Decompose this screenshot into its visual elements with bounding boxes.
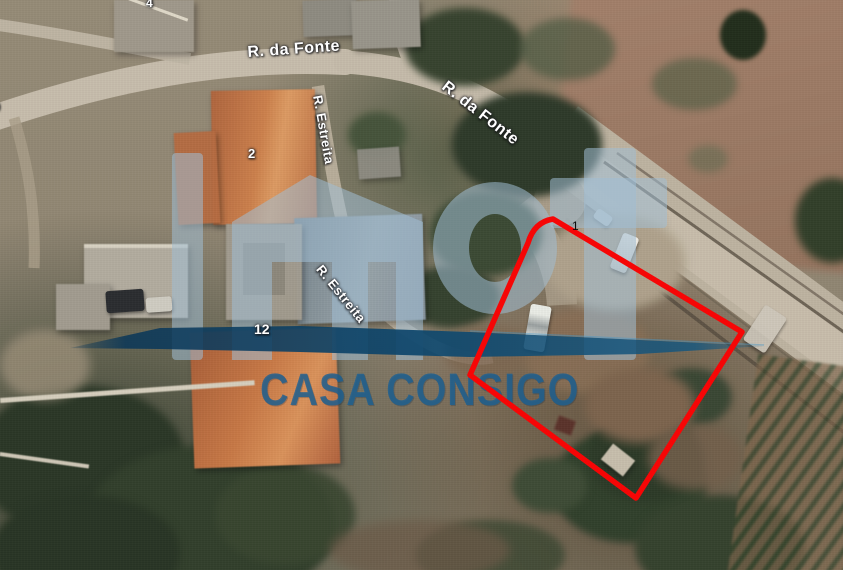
house-number-4: 4 [146, 0, 153, 10]
house-number-1: 1 [572, 219, 579, 233]
map-canvas[interactable]: imot CASA CONSIGO R. da Fonte R. da Font… [0, 0, 843, 570]
parcel-outline [0, 0, 843, 570]
house-number-2: 2 [248, 146, 255, 161]
house-number-12: 12 [254, 321, 270, 337]
